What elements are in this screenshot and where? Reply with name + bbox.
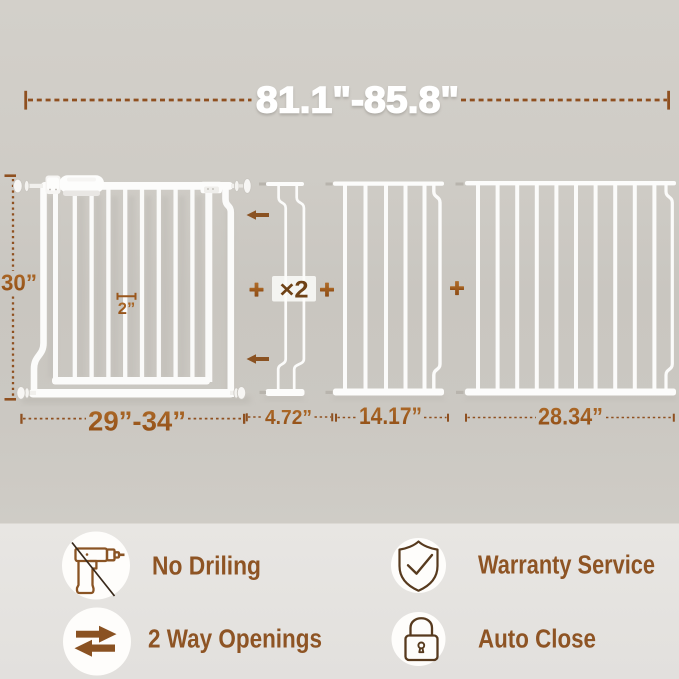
svg-text:28.34”: 28.34” bbox=[538, 404, 603, 431]
svg-text:30”: 30” bbox=[1, 270, 37, 296]
svg-text:2”: 2” bbox=[118, 300, 135, 318]
svg-text:No Driling: No Driling bbox=[152, 553, 261, 581]
svg-text:4.72”: 4.72” bbox=[265, 407, 312, 429]
svg-text:2 Way Openings: 2 Way Openings bbox=[148, 626, 322, 654]
svg-text:Warranty Service: Warranty Service bbox=[478, 552, 655, 580]
svg-text:Auto Close: Auto Close bbox=[478, 626, 596, 654]
svg-text:29”-34”: 29”-34” bbox=[88, 406, 186, 437]
svg-text:×2: ×2 bbox=[280, 277, 309, 304]
svg-text:14.17”: 14.17” bbox=[359, 403, 422, 430]
svg-text:81.1"-85.8": 81.1"-85.8" bbox=[256, 80, 459, 121]
